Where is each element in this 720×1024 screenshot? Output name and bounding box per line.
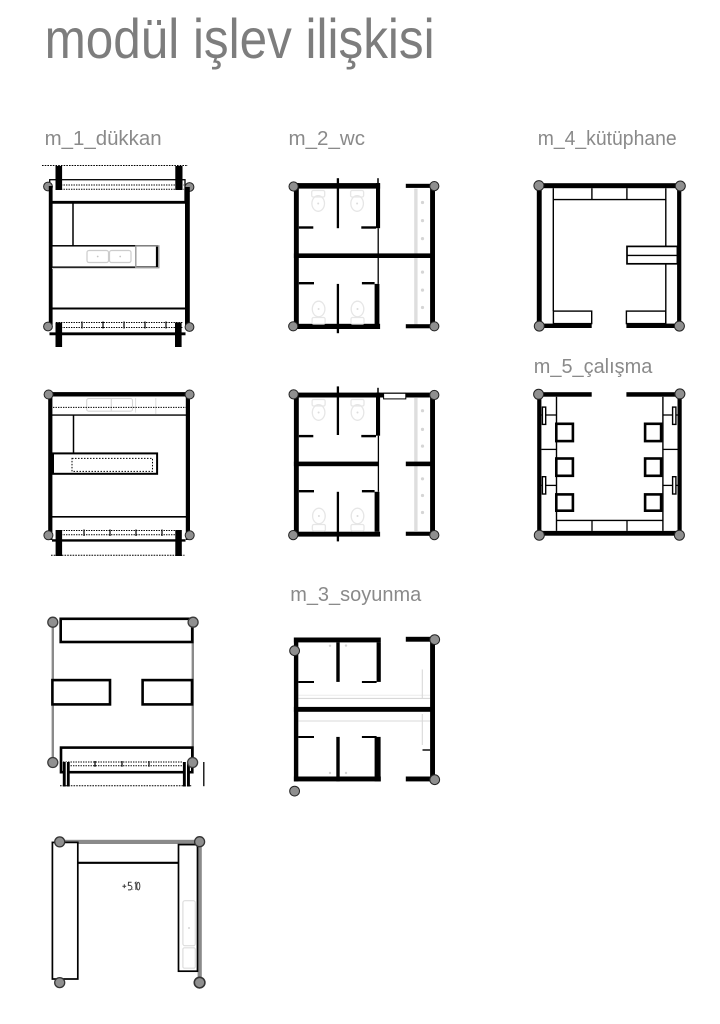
svg-text:m_5_çalışma: m_5_çalışma (534, 356, 653, 378)
svg-text:modül işlev ilişkisi: modül işlev ilişkisi (45, 7, 435, 70)
svg-text:m_4_kütüphane: m_4_kütüphane (538, 128, 677, 150)
svg-text:m_1_dükkan: m_1_dükkan (45, 128, 162, 150)
svg-text:m_2_wc: m_2_wc (289, 128, 366, 150)
svg-text:m_3_soyunma: m_3_soyunma (290, 584, 422, 606)
